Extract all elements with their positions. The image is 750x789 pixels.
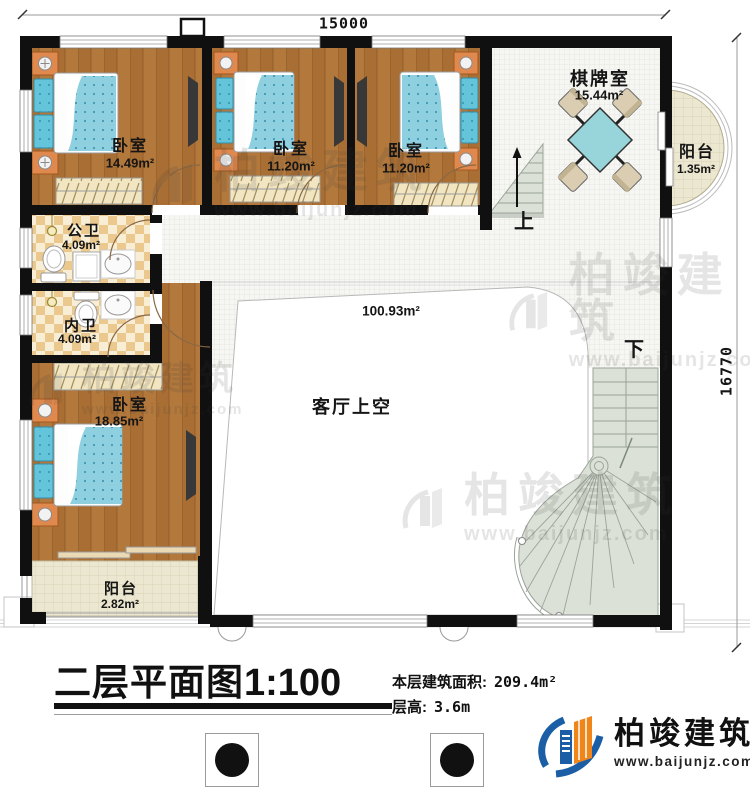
corridor-floor — [162, 215, 660, 283]
balcony-slider — [658, 112, 665, 150]
info-block: 本层建筑面积:209.4m² 层高:3.6m — [392, 670, 557, 720]
tv — [188, 76, 198, 147]
floor-area-label: 本层建筑面积: — [392, 674, 487, 691]
dimension-height: 16770 — [720, 346, 735, 396]
bedroom4-label: 卧室 — [112, 398, 148, 414]
column-dot — [440, 743, 474, 777]
balcony-slider — [666, 148, 673, 186]
lamp — [48, 298, 57, 307]
bedroom2-area: 11.20m² — [267, 160, 315, 173]
lamp — [48, 227, 57, 236]
balcony-right-area: 1.35m² — [677, 163, 715, 175]
public-bathroom-label: 公卫 — [67, 224, 101, 239]
column-dot — [215, 743, 249, 777]
balcony-right-label: 阳台 — [679, 145, 715, 161]
drawing-title: 二层平面图1:100 — [54, 652, 341, 706]
balcony-bottom-label: 阳台 — [104, 582, 138, 597]
chess-room-area: 15.44m² — [575, 89, 623, 102]
hallway-floor — [162, 283, 200, 363]
bedroom2-label: 卧室 — [273, 142, 309, 158]
drawing-scale: 1:100 — [244, 662, 341, 704]
bedroom1-label: 卧室 — [112, 139, 148, 155]
floor-height-value: 3.6m — [434, 698, 470, 716]
tv — [357, 76, 367, 147]
brand-logo: 柏竣建筑 www.baijunjz.com — [534, 708, 750, 778]
floor-area-value: 209.4m² — [494, 673, 557, 691]
balcony-bottom-area: 2.82m² — [101, 598, 139, 610]
brand-name: 柏竣建筑 — [614, 718, 750, 749]
column-symbol — [205, 733, 259, 787]
tv — [334, 76, 344, 147]
living-void-area: 100.93m² — [362, 304, 420, 318]
living-void-label: 客厅上空 — [312, 398, 392, 416]
private-bathroom-area: 4.09m² — [58, 333, 96, 345]
drawing-title-text: 二层平面图 — [54, 662, 244, 703]
stairs-down-label: 下 — [624, 340, 644, 360]
sliding-door — [126, 547, 196, 553]
dimension-width: 15000 — [319, 17, 369, 32]
floor-height-line: 层高:3.6m — [392, 695, 557, 720]
floor-area-line: 本层建筑面积:209.4m² — [392, 670, 557, 695]
title-underline — [54, 703, 392, 709]
floor-height-label: 层高: — [392, 699, 427, 716]
bedroom4-area: 18.85m² — [95, 415, 143, 428]
sliding-door — [58, 552, 130, 558]
bedroom3-label: 卧室 — [388, 144, 424, 160]
chimney — [181, 19, 204, 36]
tv — [186, 430, 196, 501]
public-bathroom-area: 4.09m² — [62, 239, 100, 251]
floor-plan-sheet: 柏竣建筑www.baijunjz.com 柏竣建筑www.baijunjz.co… — [0, 0, 750, 789]
bedroom1-area: 14.49m² — [106, 157, 154, 170]
chess-room-label: 棋牌室 — [570, 70, 630, 88]
shower — [73, 252, 100, 281]
title-underline-thin — [54, 714, 392, 715]
brand-website: www.baijunjz.com — [614, 754, 750, 769]
column-arcs — [218, 627, 468, 641]
stairs-up-label: 上 — [514, 212, 534, 232]
brand-logo-icon — [534, 708, 608, 778]
column-symbol — [430, 733, 484, 787]
bedroom3-area: 11.20m² — [382, 162, 430, 175]
